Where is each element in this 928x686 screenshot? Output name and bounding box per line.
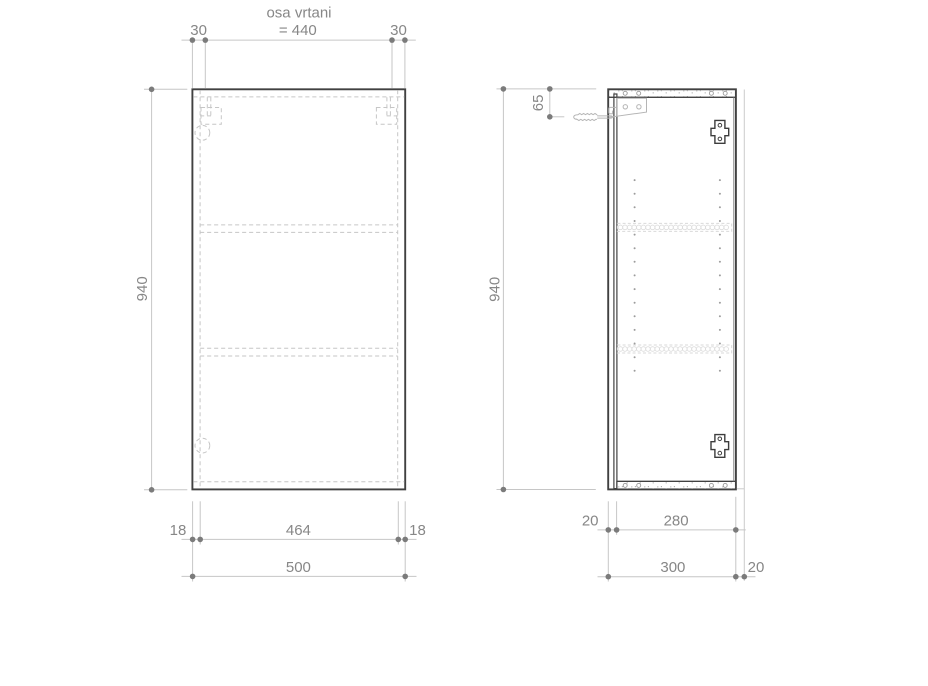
svg-text:20: 20 [582, 512, 599, 529]
svg-text:30: 30 [390, 22, 407, 39]
svg-text:20: 20 [748, 559, 765, 576]
svg-text:280: 280 [664, 513, 689, 530]
svg-text:osa vrtani: osa vrtani [266, 5, 331, 22]
svg-text:940: 940 [486, 277, 503, 302]
svg-text:= 440: = 440 [279, 22, 317, 39]
svg-text:30: 30 [190, 22, 207, 39]
svg-text:65: 65 [530, 95, 547, 112]
svg-text:940: 940 [134, 276, 151, 301]
svg-text:500: 500 [286, 559, 311, 576]
svg-text:18: 18 [409, 522, 426, 539]
svg-text:300: 300 [660, 559, 685, 576]
svg-text:464: 464 [286, 522, 311, 539]
svg-text:18: 18 [170, 522, 187, 539]
